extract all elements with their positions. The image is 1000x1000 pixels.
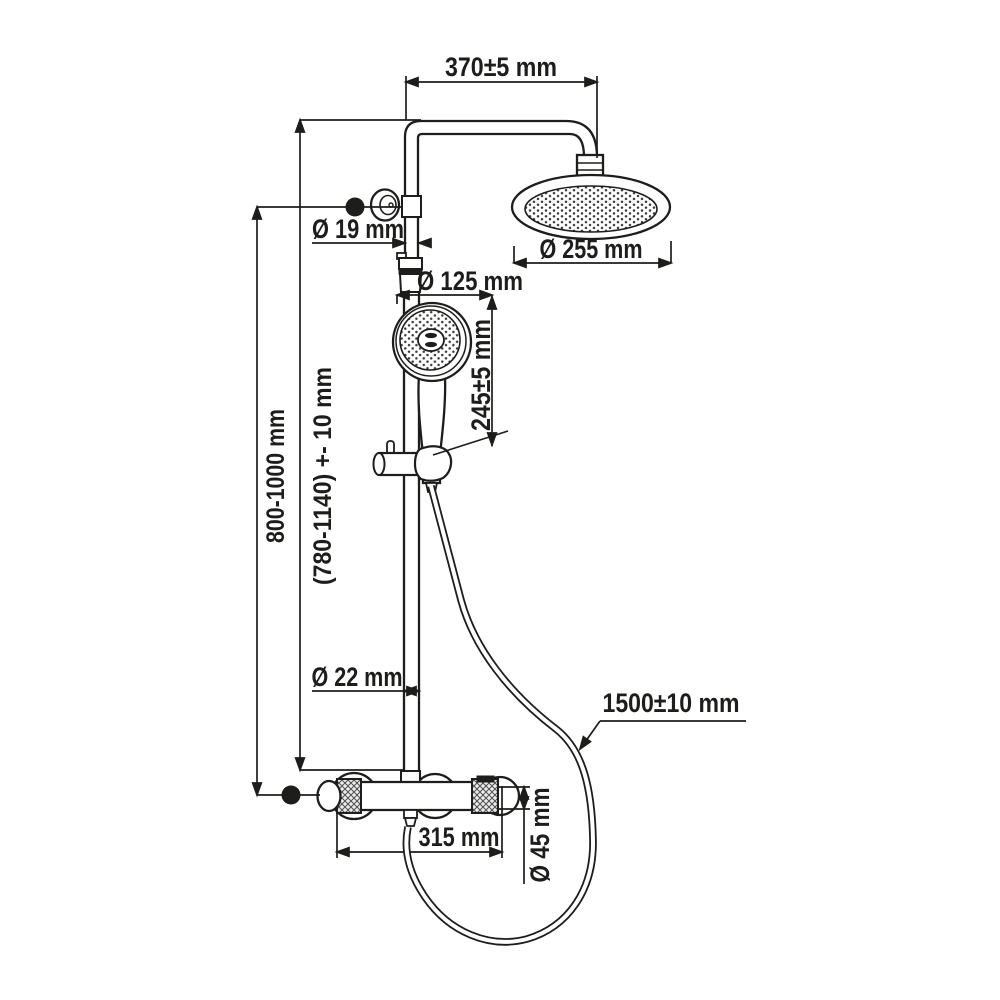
label-hose-length: 1500±10 mm [603,688,740,718]
label-hand-shower-diameter: Ø 125 mm [417,266,523,296]
label-arm-projection: 370±5 mm [445,52,557,82]
shower-system-drawing: 370±5 mm Ø 19 mm Ø 255 mm Ø 125 mm 245±5… [0,0,1000,1000]
shower-hose [406,486,593,942]
label-hand-shower-length: 245±5 mm [466,319,496,431]
technical-drawing-page: 370±5 mm Ø 19 mm Ø 255 mm Ø 125 mm 245±5… [0,0,1000,1000]
lower-mounting-point [282,786,301,805]
mixer-valve [318,771,520,826]
label-mixer-body-diameter: Ø 45 mm [525,788,555,883]
hand-shower-holder [374,441,452,492]
label-rain-head-diameter: Ø 255 mm [540,234,643,264]
label-bracket-height-range: 800-1000 mm [262,409,290,543]
label-adjustable-height-range: (780-1140) +- 10 mm [309,367,337,585]
rain-shower-head [512,175,670,239]
dimension-hose-length [576,721,746,751]
dimension-arm-projection [406,76,597,158]
label-mixer-width: 315 mm [419,822,500,852]
label-wall-supply-diameter: Ø 19 mm [312,214,404,244]
dimension-labels: 370±5 mm Ø 19 mm Ø 255 mm Ø 125 mm 245±5… [262,52,740,883]
label-rail-diameter: Ø 22 mm [312,662,403,692]
